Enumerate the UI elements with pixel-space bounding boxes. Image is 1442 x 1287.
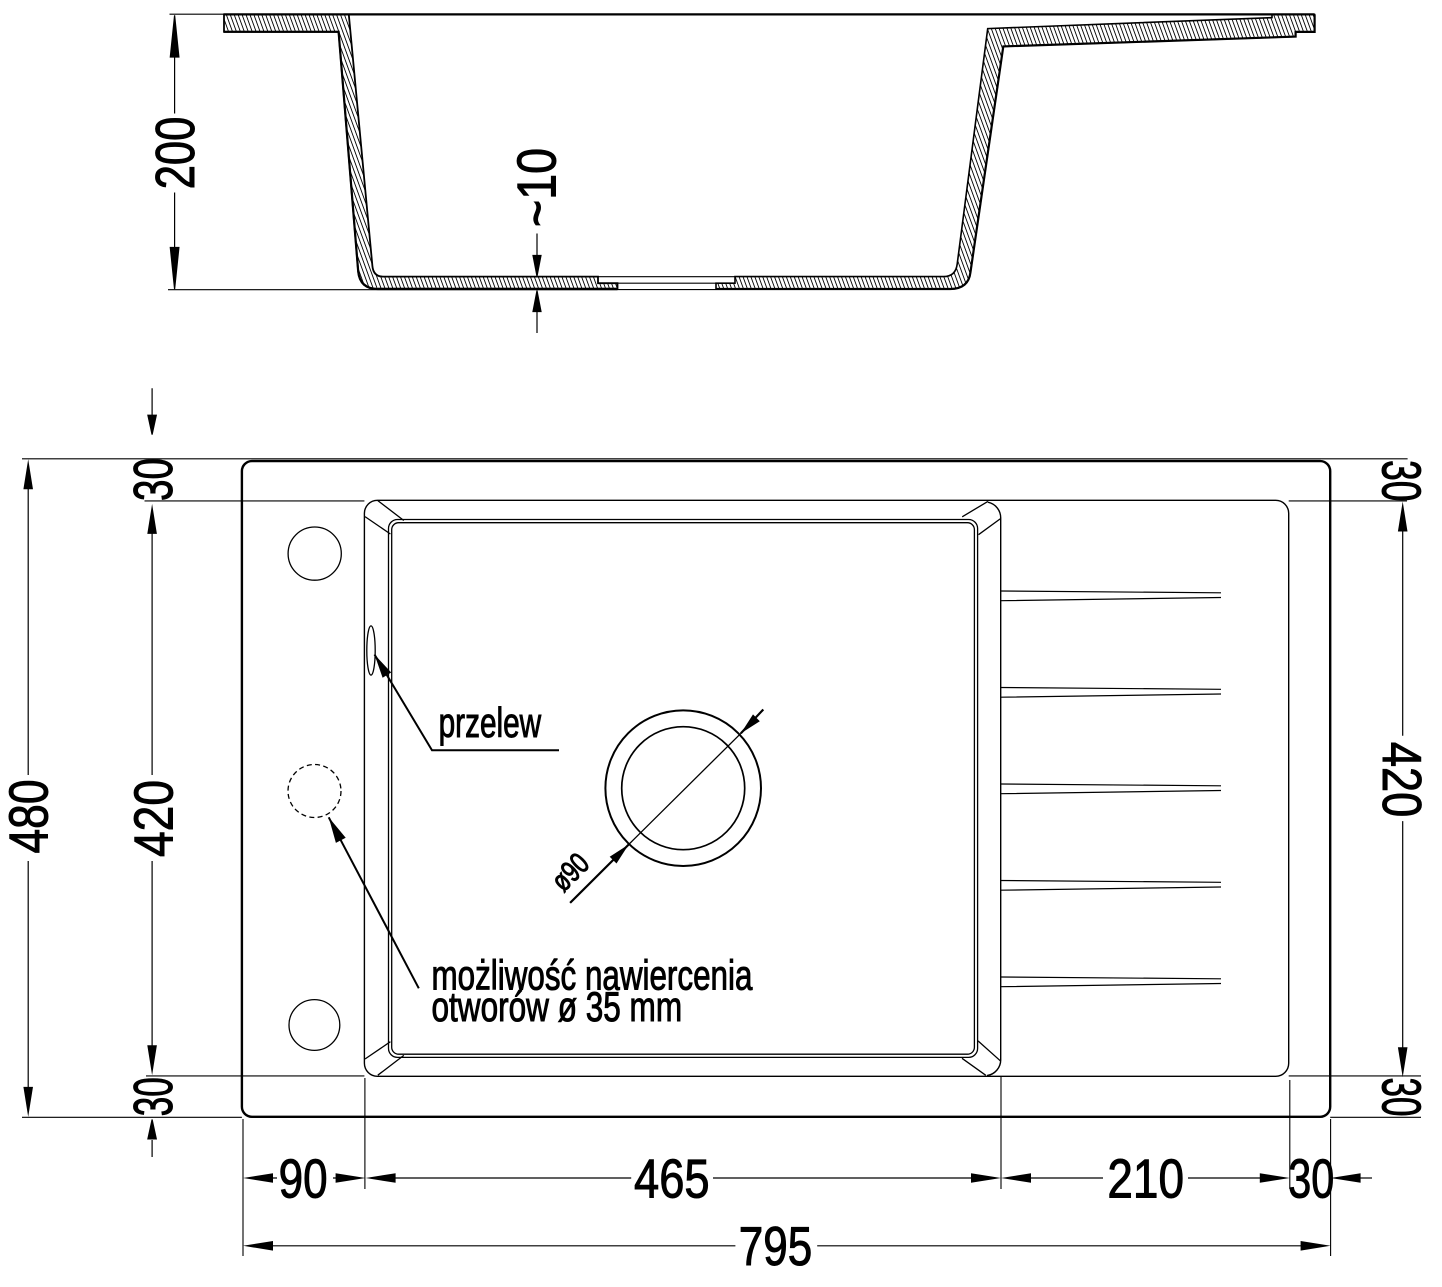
svg-text:~10: ~10 bbox=[506, 148, 568, 227]
svg-text:420: 420 bbox=[123, 780, 185, 857]
svg-text:480: 480 bbox=[0, 780, 60, 854]
svg-text:30: 30 bbox=[1371, 1078, 1433, 1117]
svg-text:30: 30 bbox=[1288, 1147, 1334, 1209]
svg-text:przelew: przelew bbox=[439, 699, 542, 746]
svg-text:30: 30 bbox=[122, 458, 184, 501]
svg-text:30: 30 bbox=[122, 1077, 184, 1116]
svg-text:420: 420 bbox=[1371, 742, 1433, 817]
svg-text:otworów ø 35 mm: otworów ø 35 mm bbox=[432, 983, 683, 1030]
svg-text:30: 30 bbox=[1371, 460, 1433, 502]
svg-text:795: 795 bbox=[739, 1215, 813, 1277]
svg-text:200: 200 bbox=[144, 117, 206, 190]
svg-text:465: 465 bbox=[634, 1147, 710, 1209]
svg-text:210: 210 bbox=[1107, 1147, 1184, 1209]
svg-text:90: 90 bbox=[279, 1147, 328, 1209]
